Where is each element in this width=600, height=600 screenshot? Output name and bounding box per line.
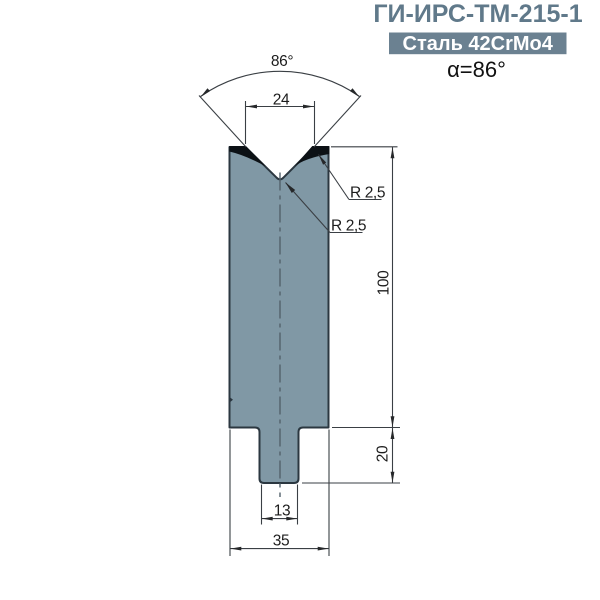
svg-text:α=86°: α=86°: [447, 57, 506, 82]
svg-text:R 2,5: R 2,5: [350, 185, 385, 202]
svg-text:13: 13: [274, 503, 290, 520]
svg-text:Сталь 42CrMo4: Сталь 42CrMo4: [403, 33, 554, 55]
svg-text:ГИ-ИРС-ТМ-215-1: ГИ-ИРС-ТМ-215-1: [373, 0, 582, 28]
svg-text:35: 35: [273, 533, 289, 550]
svg-text:R 2,5: R 2,5: [331, 218, 366, 235]
svg-text:20: 20: [375, 445, 392, 462]
svg-text:86°: 86°: [271, 53, 293, 70]
svg-text:24: 24: [273, 92, 290, 109]
svg-text:100: 100: [376, 270, 393, 295]
